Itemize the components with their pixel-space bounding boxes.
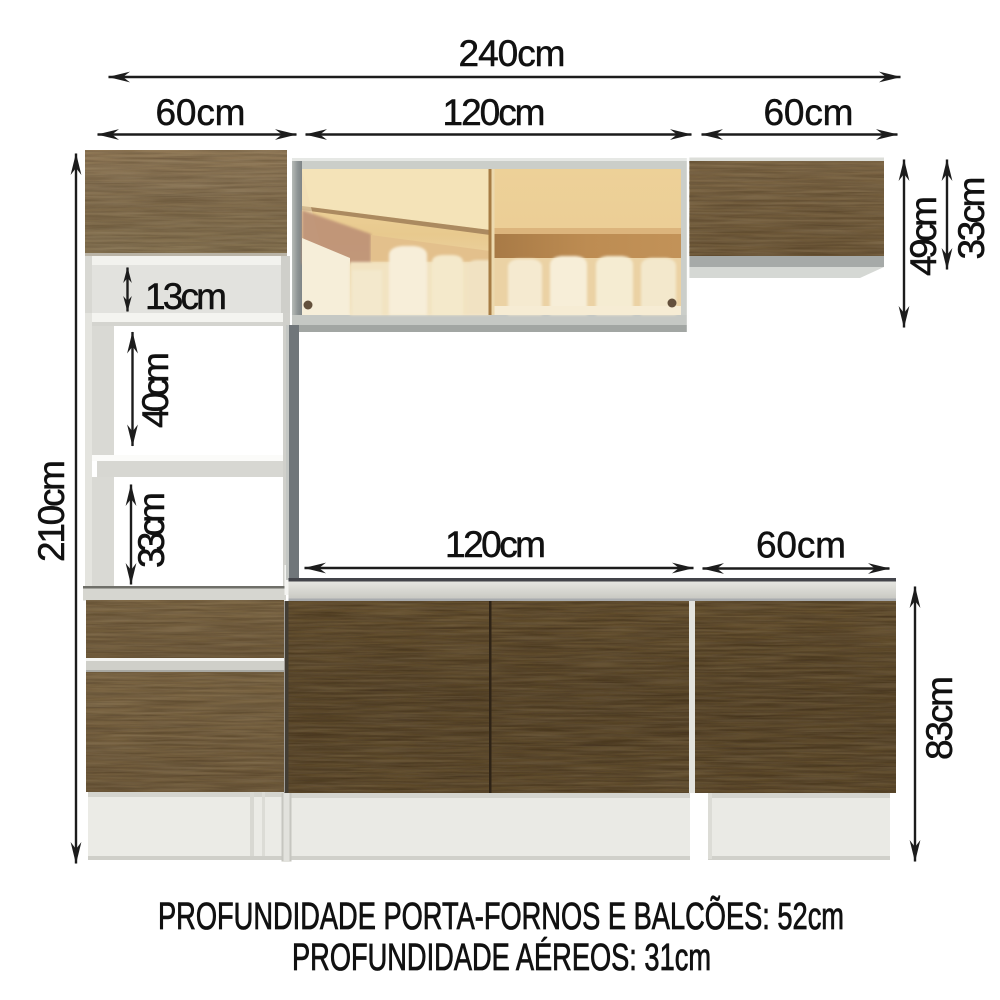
- svg-text:PROFUNDIDADE PORTA-FORNOS E BA: PROFUNDIDADE PORTA-FORNOS E BALCÕES: 52c…: [158, 894, 844, 938]
- svg-text:33cm: 33cm: [951, 177, 992, 260]
- svg-text:33cm: 33cm: [131, 492, 172, 568]
- svg-text:49cm: 49cm: [903, 196, 944, 276]
- svg-text:210cm: 210cm: [31, 460, 72, 562]
- svg-text:PROFUNDIDADE AÉREOS: 31cm: PROFUNDIDADE AÉREOS: 31cm: [292, 936, 711, 979]
- svg-text:120cm: 120cm: [445, 524, 546, 565]
- svg-text:60cm: 60cm: [156, 92, 246, 133]
- svg-text:83cm: 83cm: [919, 676, 960, 760]
- svg-text:60cm: 60cm: [764, 92, 854, 133]
- svg-text:13cm: 13cm: [145, 276, 227, 317]
- svg-text:60cm: 60cm: [756, 525, 846, 566]
- svg-text:120cm: 120cm: [443, 92, 546, 133]
- svg-text:240cm: 240cm: [459, 33, 566, 74]
- svg-text:40cm: 40cm: [135, 352, 176, 428]
